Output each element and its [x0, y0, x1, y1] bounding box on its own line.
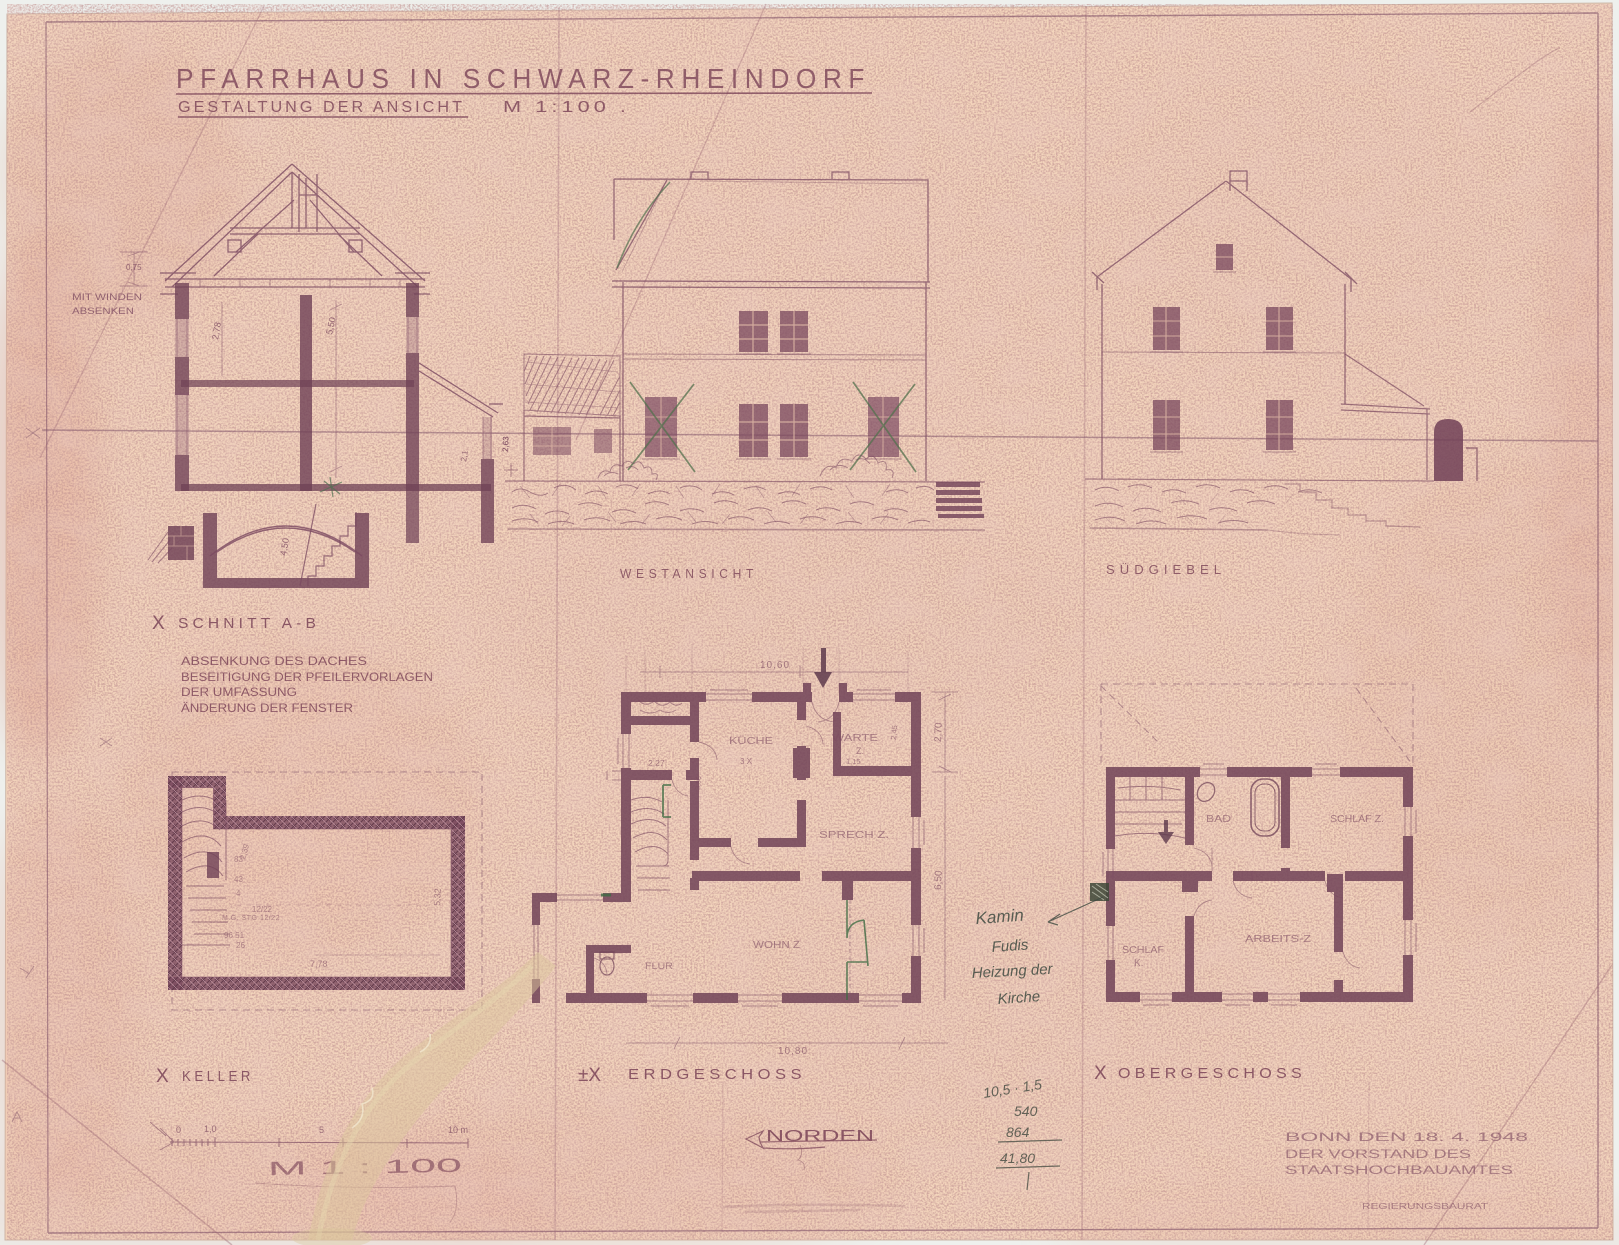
svg-text:SCHLAF: SCHLAF	[1122, 945, 1164, 956]
svg-text:2,27: 2,27	[648, 758, 665, 768]
svg-text:ERDGESCHOSS: ERDGESCHOSS	[628, 1066, 806, 1083]
svg-text:1,0: 1,0	[204, 1124, 217, 1134]
svg-text:26: 26	[236, 941, 245, 950]
svg-text:SPRECH Z.: SPRECH Z.	[819, 830, 889, 841]
svg-text:0: 0	[176, 1125, 181, 1135]
svg-text:STAATSHOCHBAUAMTES: STAATSHOCHBAUAMTES	[1285, 1165, 1514, 1177]
svg-text:7,78: 7,78	[310, 959, 328, 969]
svg-text:MIT WINDEN: MIT WINDEN	[72, 292, 142, 303]
svg-text:SCHNITT A-B: SCHNITT A-B	[178, 615, 320, 632]
svg-text:WESTANSICHT: WESTANSICHT	[620, 566, 758, 581]
svg-text:540: 540	[1014, 1103, 1038, 1119]
svg-text:3,96: 3,96	[695, 776, 703, 790]
svg-text:43: 43	[234, 875, 243, 884]
svg-text:REGIERUNGSBAURAT: REGIERUNGSBAURAT	[1362, 1202, 1488, 1211]
svg-text:ÄNDERUNG DER FENSTER: ÄNDERUNG DER FENSTER	[181, 703, 353, 715]
svg-text:5: 5	[319, 1125, 324, 1135]
svg-text:6,50: 6,50	[933, 870, 945, 890]
svg-text:41,80: 41,80	[1000, 1150, 1035, 1166]
svg-text:4: 4	[236, 889, 241, 898]
svg-text:BAD: BAD	[1206, 814, 1231, 825]
svg-text:M 1:100 .: M 1:100 .	[503, 99, 630, 116]
svg-text:ABSENKUNG DES DACHES: ABSENKUNG DES DACHES	[181, 656, 367, 668]
svg-text:KELLER: KELLER	[182, 1068, 254, 1085]
svg-text:±X: ±X	[578, 1065, 601, 1086]
svg-text:10,60: 10,60	[760, 660, 790, 671]
svg-text:10 m: 10 m	[448, 1125, 468, 1135]
svg-text:2,70: 2,70	[933, 722, 945, 742]
svg-text:12/22: 12/22	[252, 905, 273, 914]
svg-text:BONN DEN 18. 4. 1948: BONN DEN 18. 4. 1948	[1285, 1132, 1528, 1144]
svg-text:3 X: 3 X	[740, 757, 753, 766]
svg-text:X: X	[156, 1066, 169, 1087]
svg-text:DER VORSTAND DES: DER VORSTAND DES	[1285, 1149, 1472, 1161]
svg-text:5,32: 5,32	[432, 888, 443, 906]
svg-text:0,75: 0,75	[126, 263, 142, 272]
svg-text:WOHN Z: WOHN Z	[753, 940, 800, 951]
svg-text:2,45: 2,45	[889, 725, 899, 740]
svg-text:2,63: 2,63	[501, 436, 511, 452]
svg-text:NORDEN: NORDEN	[766, 1128, 874, 1145]
svg-text:96 51: 96 51	[224, 931, 245, 940]
svg-text:Kirche: Kirche	[997, 988, 1041, 1008]
svg-text:PFARRHAUS IN SCHWARZ-RHEINDORF: PFARRHAUS IN SCHWARZ-RHEINDORF	[176, 63, 871, 94]
svg-text:Fudis: Fudis	[991, 936, 1029, 956]
svg-text:864: 864	[1006, 1124, 1030, 1140]
svg-text:Kamin: Kamin	[975, 906, 1024, 928]
svg-text:ABSENKEN: ABSENKEN	[72, 306, 134, 317]
svg-text:K.: K.	[1134, 958, 1143, 969]
svg-text:GESTALTUNG DER ANSICHT: GESTALTUNG DER ANSICHT	[178, 99, 465, 116]
svg-text:X: X	[1094, 1063, 1107, 1084]
svg-text:DER UMFASSUNG: DER UMFASSUNG	[181, 687, 297, 699]
svg-text:BESEITIGUNG DER PFEILERVORLA: BESEITIGUNG DER PFEILERVORLAGEN	[181, 672, 433, 684]
svg-text:KÜCHE: KÜCHE	[729, 735, 773, 747]
svg-text:M.G. STG 12/22: M.G. STG 12/22	[222, 915, 280, 922]
svg-text:OBERGESCHOSS: OBERGESCHOSS	[1118, 1065, 1306, 1082]
svg-text:SCHLAF Z.: SCHLAF Z.	[1330, 814, 1384, 825]
svg-text:X: X	[152, 613, 165, 634]
svg-text:FLUR: FLUR	[645, 961, 673, 972]
svg-text:SÜDGIEBEL: SÜDGIEBEL	[1106, 562, 1226, 577]
svg-text:10,80: 10,80	[778, 1046, 808, 1057]
svg-text:Z.: Z.	[856, 746, 864, 756]
svg-text:1,15: 1,15	[846, 757, 861, 766]
svg-text:WARTE: WARTE	[832, 733, 878, 744]
svg-text:ARBEITS-Z: ARBEITS-Z	[1245, 934, 1311, 945]
